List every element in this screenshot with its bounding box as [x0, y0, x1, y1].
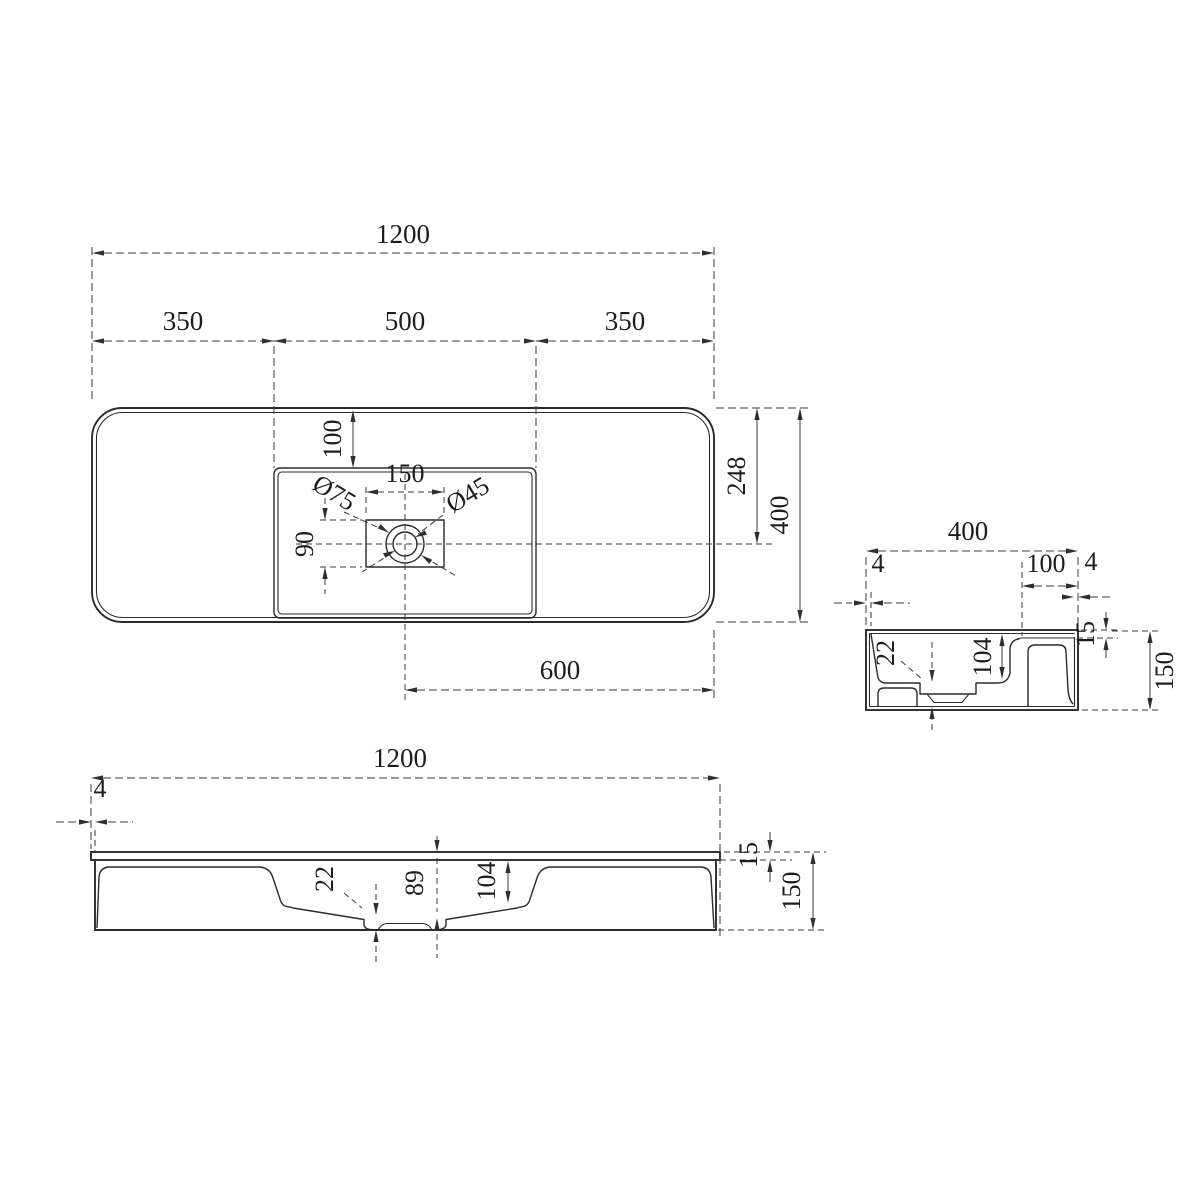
dim-label-side-150: 150: [1150, 652, 1179, 691]
dim-top-edge-to-center: 248: [716, 408, 812, 544]
dim-top-segments: 350 500 350: [92, 306, 714, 468]
dim-label-top-1200: 1200: [376, 219, 430, 249]
dim-label-front-22: 22: [310, 866, 339, 892]
dim-label-front-104: 104: [472, 862, 501, 901]
dim-side-deck: 100: [1022, 549, 1078, 636]
dim-label-side-4-left: 4: [872, 549, 885, 578]
dim-front-drain-depth: 89: [400, 836, 440, 958]
side-view-drain-centerline: [929, 642, 934, 730]
side-view-foot: [878, 688, 917, 707]
dim-label-top-350-left: 350: [163, 306, 204, 336]
dim-label-side-104: 104: [968, 638, 997, 677]
dim-label-front-15: 15: [734, 842, 763, 868]
dim-label-side-22: 22: [871, 640, 900, 666]
dim-label-top-150: 150: [386, 459, 425, 488]
dim-label-side-100: 100: [1027, 549, 1066, 578]
dim-label-side-15: 15: [1071, 621, 1100, 647]
dim-top-center-to-edge: 600: [405, 630, 714, 700]
dim-label-top-100: 100: [318, 420, 347, 459]
dim-side-lip-right: 4: [1062, 547, 1114, 600]
dim-label-top-90: 90: [290, 531, 319, 557]
dim-label-top-500: 500: [385, 306, 426, 336]
dim-front-lip-overhang: 4: [56, 774, 133, 852]
side-view-drain: [927, 694, 969, 703]
front-view-lip: [91, 852, 720, 860]
dim-label-front-89: 89: [400, 870, 429, 896]
dim-label-front-4: 4: [94, 774, 107, 803]
dim-label-top-600: 600: [540, 655, 581, 685]
dim-label-front-1200: 1200: [373, 743, 427, 773]
dim-label-top-dia75: Ø75: [308, 469, 361, 517]
top-view-basin-outline: [92, 408, 714, 622]
dim-top-drain-inner-dia: Ø45: [362, 471, 494, 572]
side-view: 22 104 400 4: [834, 516, 1179, 730]
dim-label-side-400: 400: [948, 516, 989, 546]
dim-front-rim: 15: [720, 832, 826, 882]
front-view: 1200 4 22 89: [56, 743, 826, 962]
dim-top-recess-offset: 100: [318, 410, 356, 468]
dim-label-top-400: 400: [765, 496, 794, 535]
dim-label-side-4-right: 4: [1085, 547, 1098, 576]
dim-label-top-dia45: Ø45: [441, 471, 494, 519]
dim-side-wall-thickness: 22: [871, 640, 922, 679]
top-view: 1200 350 500 350 100: [92, 219, 812, 700]
side-view-right-cavity: [1028, 645, 1073, 706]
basin-technical-drawing: 1200 350 500 350 100: [0, 0, 1200, 1200]
dim-side-bowl-depth: 104: [968, 634, 1005, 679]
dim-top-depth: 400: [716, 408, 812, 622]
front-view-drain-detail: [378, 924, 432, 931]
technical-drawing-page: 1200 350 500 350 100: [0, 0, 1200, 1200]
dim-top-drain-rect-height: 90: [290, 498, 362, 594]
dim-front-overall: 1200: [91, 743, 720, 938]
dim-front-wall-thickness: 22: [310, 866, 379, 962]
dim-label-top-350-right: 350: [605, 306, 646, 336]
dim-front-bowl-depth: 104: [472, 861, 511, 903]
dim-side-lip-left: 4: [834, 549, 910, 626]
dim-label-front-150: 150: [777, 872, 806, 911]
dim-top-drain-outer-dia: Ø75: [308, 469, 458, 577]
dim-label-top-248: 248: [722, 457, 751, 496]
